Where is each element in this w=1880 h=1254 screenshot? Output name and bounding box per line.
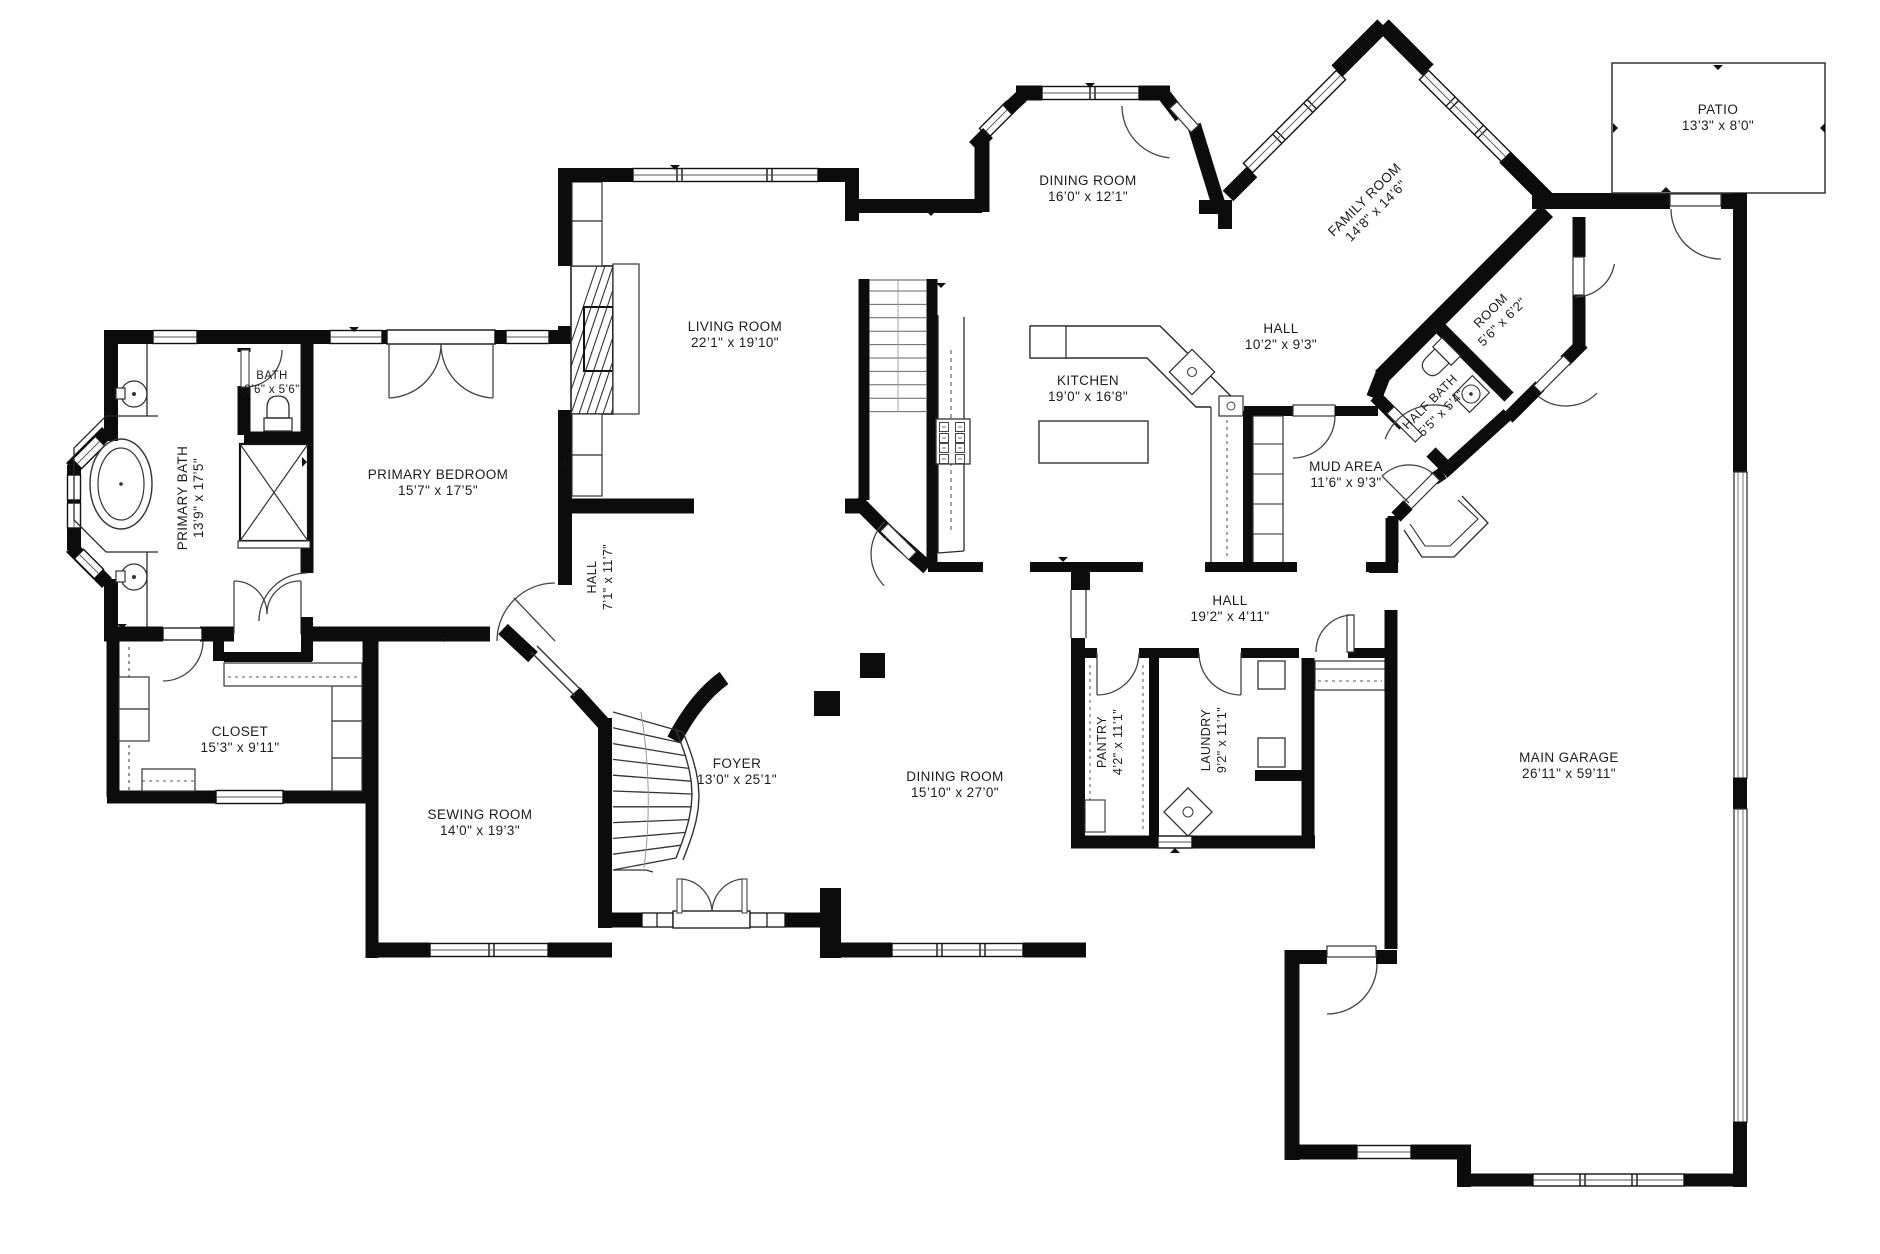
- svg-text:11’6" x 9’3": 11’6" x 9’3": [1310, 475, 1381, 490]
- svg-text:DINING ROOM: DINING ROOM: [1039, 173, 1136, 188]
- svg-text:MUD AREA: MUD AREA: [1309, 459, 1383, 474]
- svg-text:BATH: BATH: [256, 370, 287, 382]
- svg-text:HALL: HALL: [1263, 321, 1298, 336]
- svg-text:DINING ROOM: DINING ROOM: [906, 769, 1003, 784]
- svg-text:PANTRY: PANTRY: [1095, 716, 1109, 768]
- svg-text:15’3" x 9’11": 15’3" x 9’11": [200, 740, 279, 755]
- svg-text:PATIO: PATIO: [1698, 102, 1739, 117]
- svg-text:14’0" x 19’3": 14’0" x 19’3": [440, 823, 520, 838]
- svg-text:4’2" x 11’1": 4’2" x 11’1": [1111, 709, 1125, 775]
- svg-text:19’0" x 16’8": 19’0" x 16’8": [1048, 389, 1128, 404]
- svg-text:HALL: HALL: [585, 561, 599, 594]
- svg-text:MAIN GARAGE: MAIN GARAGE: [1519, 750, 1619, 765]
- svg-text:16’0" x 12’1": 16’0" x 12’1": [1048, 189, 1128, 204]
- svg-text:13’9" x 17’5": 13’9" x 17’5": [191, 458, 206, 538]
- svg-text:PRIMARY BEDROOM: PRIMARY BEDROOM: [368, 467, 509, 482]
- svg-text:22’1" x 19’10": 22’1" x 19’10": [691, 335, 779, 350]
- svg-text:SEWING ROOM: SEWING ROOM: [428, 807, 533, 822]
- svg-text:HALL: HALL: [1212, 593, 1247, 608]
- svg-text:CLOSET: CLOSET: [212, 724, 268, 739]
- svg-text:7’1" x 11’7": 7’1" x 11’7": [601, 544, 615, 610]
- svg-text:KITCHEN: KITCHEN: [1057, 373, 1119, 388]
- svg-text:15’10" x 27’0": 15’10" x 27’0": [911, 785, 999, 800]
- svg-text:PRIMARY BATH: PRIMARY BATH: [175, 446, 190, 551]
- svg-text:FOYER: FOYER: [713, 756, 762, 771]
- svg-text:LAUNDRY: LAUNDRY: [1199, 709, 1213, 772]
- svg-text:9’2" x 11’1": 9’2" x 11’1": [1215, 707, 1229, 773]
- svg-text:19’2" x 4’11": 19’2" x 4’11": [1190, 609, 1269, 624]
- svg-text:26’11" x 59’11": 26’11" x 59’11": [1522, 766, 1616, 781]
- svg-text:LIVING ROOM: LIVING ROOM: [688, 319, 782, 334]
- svg-text:13’0" x 25’1": 13’0" x 25’1": [697, 772, 777, 787]
- svg-text:10’2" x 9’3": 10’2" x 9’3": [1245, 337, 1317, 352]
- svg-text:3’6" x 5’6": 3’6" x 5’6": [244, 384, 299, 396]
- svg-text:15’7" x 17’5": 15’7" x 17’5": [398, 483, 478, 498]
- svg-text:13’3" x 8’0": 13’3" x 8’0": [1682, 118, 1754, 133]
